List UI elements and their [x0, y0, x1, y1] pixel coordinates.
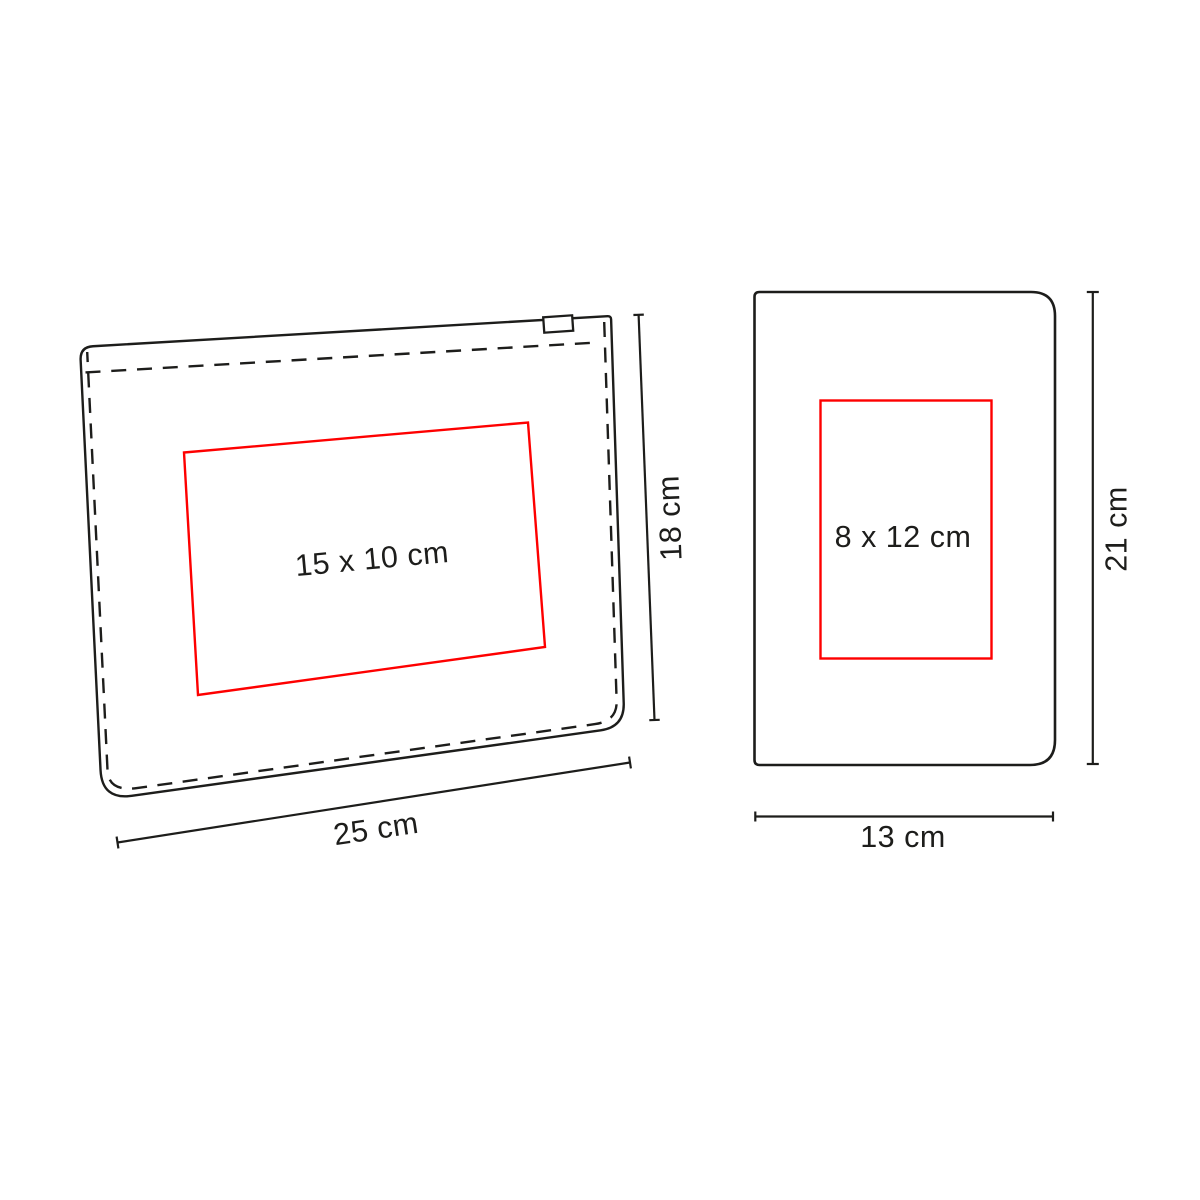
svg-text:13 cm: 13 cm — [860, 820, 946, 854]
svg-text:21 cm: 21 cm — [1100, 486, 1134, 572]
svg-text:18 cm: 18 cm — [651, 475, 688, 562]
svg-text:8 x 12 cm: 8 x 12 cm — [835, 520, 972, 554]
